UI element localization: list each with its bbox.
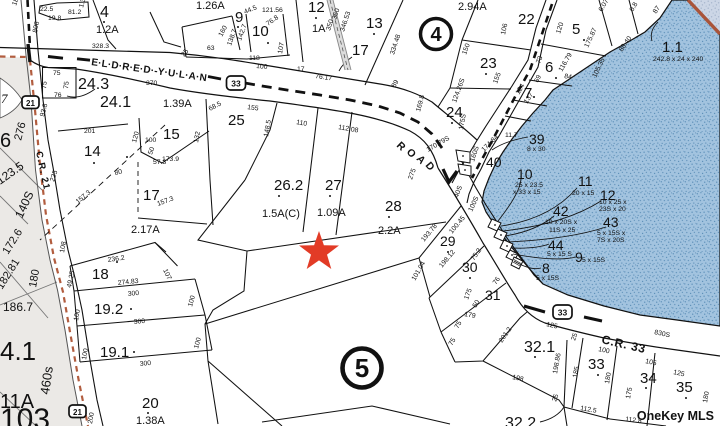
svg-text:300: 300 bbox=[139, 360, 151, 368]
svg-text:6: 6 bbox=[545, 59, 553, 76]
svg-text:11.7: 11.7 bbox=[505, 132, 518, 139]
svg-text:10 x 25 x: 10 x 25 x bbox=[599, 199, 627, 206]
svg-text:5 x 15 S: 5 x 15 S bbox=[547, 251, 572, 258]
svg-text:23S x 20: 23S x 20 bbox=[599, 206, 626, 213]
svg-text:27: 27 bbox=[325, 177, 342, 194]
svg-text:5: 5 bbox=[572, 21, 580, 38]
svg-text:15: 15 bbox=[163, 126, 180, 143]
svg-text:39: 39 bbox=[529, 131, 545, 147]
svg-text:17: 17 bbox=[297, 66, 305, 73]
svg-text:173.9: 173.9 bbox=[162, 156, 179, 163]
svg-text:42: 42 bbox=[553, 203, 569, 219]
svg-text:75: 75 bbox=[63, 81, 71, 89]
svg-text:32.1: 32.1 bbox=[524, 339, 555, 356]
svg-text:81.2: 81.2 bbox=[68, 9, 81, 16]
svg-text:33: 33 bbox=[588, 356, 605, 373]
svg-text:OneKey MLS: OneKey MLS bbox=[637, 409, 714, 423]
svg-text:186.7: 186.7 bbox=[3, 300, 33, 314]
svg-text:35: 35 bbox=[676, 379, 693, 396]
svg-text:32.2: 32.2 bbox=[505, 415, 536, 426]
svg-text:26.2: 26.2 bbox=[274, 177, 303, 194]
svg-text:18: 18 bbox=[92, 266, 109, 283]
svg-text:19.2: 19.2 bbox=[94, 301, 123, 318]
svg-text:1A: 1A bbox=[312, 23, 326, 35]
svg-text:5 x 15S x: 5 x 15S x bbox=[597, 230, 626, 237]
svg-text:20: 20 bbox=[142, 395, 159, 412]
svg-text:242.8 x 24 x 240: 242.8 x 24 x 240 bbox=[653, 56, 703, 63]
svg-text:43: 43 bbox=[603, 214, 619, 230]
svg-text:84: 84 bbox=[564, 73, 573, 81]
svg-text:8: 8 bbox=[542, 260, 550, 276]
svg-text:25 x 23.5: 25 x 23.5 bbox=[515, 182, 543, 189]
svg-text:13: 13 bbox=[366, 15, 383, 32]
svg-text:4: 4 bbox=[430, 24, 442, 46]
svg-text:22: 22 bbox=[518, 11, 535, 28]
svg-text:1.38A: 1.38A bbox=[136, 415, 165, 426]
svg-text:5: 5 bbox=[355, 353, 369, 383]
svg-text:1.39A: 1.39A bbox=[163, 98, 192, 110]
svg-text:12: 12 bbox=[308, 0, 325, 16]
svg-text:21: 21 bbox=[26, 99, 35, 108]
svg-text:23: 23 bbox=[480, 55, 497, 72]
svg-text:20 x 15: 20 x 15 bbox=[572, 190, 595, 197]
svg-text:1.09A: 1.09A bbox=[317, 207, 346, 219]
svg-text:118: 118 bbox=[249, 55, 260, 62]
svg-text:10: 10 bbox=[252, 23, 269, 40]
svg-text:2.17A: 2.17A bbox=[131, 224, 160, 236]
svg-text:300: 300 bbox=[133, 318, 145, 326]
svg-text:201: 201 bbox=[84, 128, 96, 135]
svg-text:25: 25 bbox=[228, 112, 245, 129]
svg-text:103: 103 bbox=[0, 403, 50, 426]
svg-text:24.3: 24.3 bbox=[78, 76, 109, 93]
svg-text:21: 21 bbox=[73, 408, 82, 417]
svg-text:1.26A: 1.26A bbox=[196, 0, 225, 12]
svg-text:22.5: 22.5 bbox=[40, 6, 53, 13]
svg-text:4.1: 4.1 bbox=[0, 336, 36, 366]
svg-text:14: 14 bbox=[84, 143, 101, 160]
svg-text:75: 75 bbox=[53, 70, 61, 77]
svg-text:4: 4 bbox=[100, 4, 109, 21]
svg-text:8 x 30: 8 x 30 bbox=[527, 146, 546, 153]
svg-text:31: 31 bbox=[485, 287, 501, 303]
svg-text:1.2A: 1.2A bbox=[96, 24, 119, 36]
svg-text:x 33 x 15: x 33 x 15 bbox=[513, 189, 541, 196]
svg-text:17: 17 bbox=[352, 42, 369, 59]
svg-text:2.2A: 2.2A bbox=[378, 225, 401, 237]
svg-text:28: 28 bbox=[385, 198, 402, 215]
svg-text:33: 33 bbox=[231, 79, 241, 89]
svg-text:10: 10 bbox=[517, 166, 533, 182]
svg-text:121.56: 121.56 bbox=[262, 7, 283, 14]
svg-text:19.8: 19.8 bbox=[48, 15, 61, 22]
svg-text:24.1: 24.1 bbox=[100, 94, 131, 111]
svg-text:40: 40 bbox=[486, 154, 502, 170]
svg-text:1.1: 1.1 bbox=[662, 39, 683, 56]
svg-text:33: 33 bbox=[558, 308, 568, 318]
svg-text:5 x 15S: 5 x 15S bbox=[536, 275, 560, 282]
svg-text:19.1: 19.1 bbox=[100, 344, 129, 361]
svg-text:370: 370 bbox=[146, 80, 158, 87]
svg-text:100: 100 bbox=[145, 137, 157, 144]
svg-text:11S x 25: 11S x 25 bbox=[549, 227, 576, 234]
svg-text:300: 300 bbox=[127, 290, 139, 298]
svg-text:10 x 20S x: 10 x 20S x bbox=[545, 219, 578, 226]
svg-text:75: 75 bbox=[41, 81, 49, 89]
svg-text:1.5A(C): 1.5A(C) bbox=[262, 208, 300, 220]
svg-text:11: 11 bbox=[578, 173, 593, 189]
svg-text:6: 6 bbox=[0, 130, 11, 152]
svg-text:100: 100 bbox=[256, 63, 268, 71]
svg-text:7S x 20S: 7S x 20S bbox=[597, 237, 625, 244]
svg-text:7: 7 bbox=[1, 91, 8, 106]
svg-text:5 x 15S: 5 x 15S bbox=[582, 257, 606, 264]
svg-text:63: 63 bbox=[207, 45, 215, 52]
svg-text:2.94A: 2.94A bbox=[458, 1, 487, 13]
svg-text:34: 34 bbox=[640, 370, 657, 387]
svg-text:76: 76 bbox=[54, 92, 62, 99]
svg-text:328.3: 328.3 bbox=[92, 43, 109, 50]
